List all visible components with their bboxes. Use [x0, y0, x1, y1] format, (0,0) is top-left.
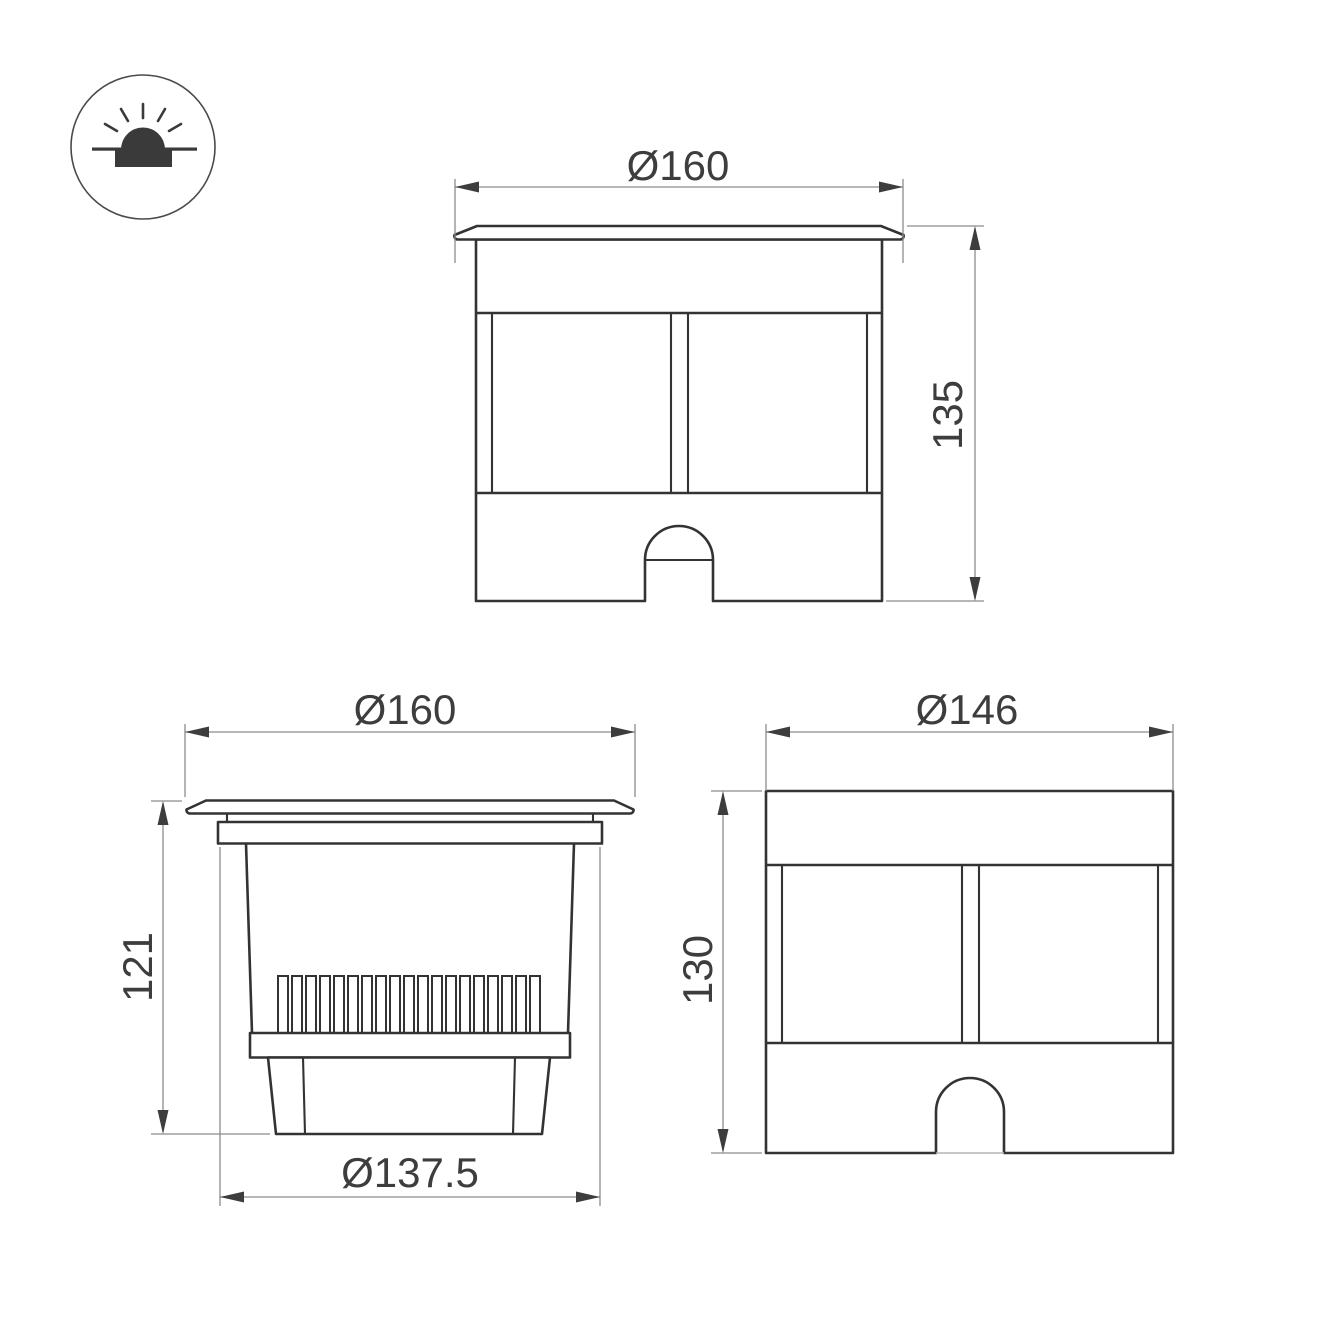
fixture-outline-front [454, 226, 903, 601]
light-ray-icon [158, 109, 165, 121]
arrowhead-down [718, 1129, 729, 1153]
arrowhead-left [766, 727, 790, 738]
light-ray-icon [121, 109, 128, 121]
ground-line-icon [92, 148, 197, 151]
heatsink-fin [348, 976, 358, 1033]
diameter-label: Ø160 [354, 686, 457, 733]
heatsink-fin [376, 976, 386, 1033]
arrowhead-down [158, 1110, 169, 1134]
view-front-assembled: Ø160 135 [454, 142, 984, 601]
heatsink-fin [390, 976, 400, 1033]
arrowhead-down [970, 577, 981, 601]
arrowhead-right [1149, 727, 1173, 738]
heatsink-fin [320, 976, 330, 1033]
dimension-diameter-side: Ø160 [185, 686, 635, 797]
heatsink-fin [460, 976, 470, 1033]
base-diameter-label: Ø137.5 [341, 1149, 479, 1196]
dimension-diameter-sleeve: Ø146 [766, 686, 1173, 791]
arrowhead-up [158, 801, 169, 825]
arrowhead-right [611, 727, 635, 738]
mounting-plate [250, 1033, 570, 1058]
heatsink-fin [418, 976, 428, 1033]
lamp-dome-icon [121, 128, 165, 150]
heatsink-fin [446, 976, 456, 1033]
light-ray-icon [169, 124, 181, 131]
arrowhead-right [576, 1192, 600, 1203]
arrowhead-left [185, 727, 209, 738]
heatsink-fin [530, 976, 540, 1033]
heatsink-fin [306, 976, 316, 1033]
dimension-height-sleeve: 130 [674, 791, 762, 1153]
fixture-outline-side [186, 801, 633, 1135]
heatsink-fin [334, 976, 344, 1033]
heatsink-fin [292, 976, 302, 1033]
height-label: 135 [924, 380, 971, 450]
fixture-body [476, 240, 882, 602]
height-label: 130 [674, 935, 721, 1005]
diameter-label: Ø160 [627, 142, 730, 189]
fixture-flange [454, 226, 903, 240]
height-label: 121 [114, 932, 161, 1002]
heatsink-fins [278, 976, 540, 1033]
light-ray-icon [105, 124, 117, 131]
driver-base [268, 1058, 550, 1135]
heatsink-fin [488, 976, 498, 1033]
technical-drawing-page: Ø160 135 [0, 0, 1331, 1331]
heatsink-fin [432, 976, 442, 1033]
heatsink-fin [278, 976, 288, 1033]
arrowhead-up [970, 226, 981, 250]
sleeve-outline [766, 791, 1173, 1153]
view-mounting-sleeve: Ø146 130 [674, 686, 1173, 1153]
body-side-left [246, 844, 252, 1034]
dimension-height-front: 135 [886, 226, 984, 601]
arrowhead-right [879, 182, 903, 193]
recessed-luminaire-icon [71, 75, 215, 219]
heatsink-fin [516, 976, 526, 1033]
diameter-label: Ø146 [916, 686, 1019, 733]
arrowhead-left [455, 182, 479, 193]
arrowhead-up [718, 791, 729, 815]
arrowhead-left [220, 1192, 244, 1203]
heatsink-fin [474, 976, 484, 1033]
heatsink-fin [502, 976, 512, 1033]
heatsink-fin [362, 976, 372, 1033]
sleeve-body [766, 791, 1173, 1153]
collar-bezel [218, 822, 602, 844]
fixture-flange [186, 801, 633, 814]
view-side-light-unit: Ø160 121 Ø137.5 [114, 686, 635, 1206]
heatsink-fin [404, 976, 414, 1033]
technical-drawing-canvas: Ø160 135 [0, 0, 1331, 1331]
recessed-body-icon [115, 151, 172, 168]
body-side-right [568, 844, 574, 1034]
